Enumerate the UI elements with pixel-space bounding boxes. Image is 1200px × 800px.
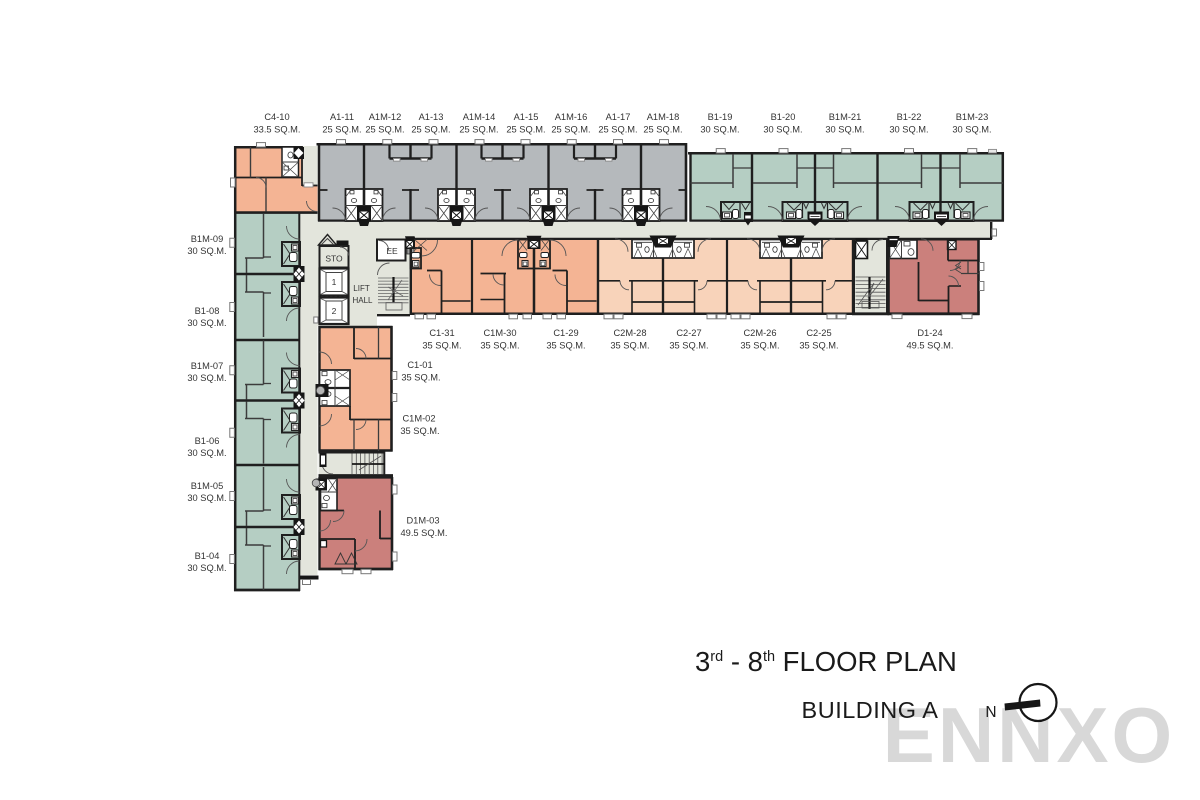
svg-text:C2M-28: C2M-28 (613, 328, 646, 338)
svg-text:D1-24: D1-24 (917, 328, 942, 338)
svg-text:25 SQ.M.: 25 SQ.M. (411, 125, 450, 135)
svg-text:49.5 SQ.M.: 49.5 SQ.M. (906, 341, 953, 351)
svg-text:35 SQ.M.: 35 SQ.M. (546, 341, 585, 351)
svg-text:30 SQ.M.: 30 SQ.M. (187, 493, 226, 503)
svg-text:C1-29: C1-29 (553, 328, 578, 338)
svg-text:B1-04: B1-04 (195, 551, 220, 561)
svg-text:B1-06: B1-06 (195, 436, 220, 446)
svg-text:30 SQ.M.: 30 SQ.M. (187, 373, 226, 383)
svg-text:33.5 SQ.M.: 33.5 SQ.M. (253, 125, 300, 135)
svg-text:25 SQ.M.: 25 SQ.M. (459, 125, 498, 135)
svg-text:35 SQ.M.: 35 SQ.M. (610, 341, 649, 351)
svg-text:C1-01: C1-01 (407, 360, 432, 370)
svg-text:35 SQ.M.: 35 SQ.M. (799, 341, 838, 351)
svg-text:B1-19: B1-19 (708, 112, 733, 122)
svg-text:25 SQ.M.: 25 SQ.M. (322, 125, 361, 135)
svg-text:30 SQ.M.: 30 SQ.M. (700, 125, 739, 135)
svg-text:B1M-07: B1M-07 (191, 361, 224, 371)
svg-text:25 SQ.M.: 25 SQ.M. (643, 125, 682, 135)
svg-text:A1M-18: A1M-18 (647, 112, 680, 122)
svg-text:C2-25: C2-25 (806, 328, 831, 338)
svg-text:B1M-21: B1M-21 (829, 112, 862, 122)
svg-text:35 SQ.M.: 35 SQ.M. (400, 426, 439, 436)
svg-text:A1M-14: A1M-14 (463, 112, 496, 122)
svg-text:HALL: HALL (352, 296, 373, 305)
svg-text:30 SQ.M.: 30 SQ.M. (187, 318, 226, 328)
svg-text:D1M-03: D1M-03 (406, 516, 439, 526)
svg-text:C1-31: C1-31 (429, 328, 454, 338)
svg-text:B1-08: B1-08 (195, 306, 220, 316)
svg-text:A1M-16: A1M-16 (555, 112, 588, 122)
svg-text:C1M-02: C1M-02 (402, 414, 435, 424)
svg-text:30 SQ.M.: 30 SQ.M. (187, 246, 226, 256)
svg-text:35 SQ.M.: 35 SQ.M. (422, 341, 461, 351)
svg-text:35 SQ.M.: 35 SQ.M. (669, 341, 708, 351)
svg-text:30 SQ.M.: 30 SQ.M. (889, 125, 928, 135)
svg-text:30 SQ.M.: 30 SQ.M. (187, 563, 226, 573)
svg-text:A1M-12: A1M-12 (369, 112, 402, 122)
svg-text:C4-10: C4-10 (264, 112, 289, 122)
svg-text:25 SQ.M.: 25 SQ.M. (506, 125, 545, 135)
svg-text:C2-27: C2-27 (676, 328, 701, 338)
svg-text:35 SQ.M.: 35 SQ.M. (740, 341, 779, 351)
svg-text:30 SQ.M.: 30 SQ.M. (952, 125, 991, 135)
svg-text:STO: STO (325, 254, 343, 264)
svg-text:30 SQ.M.: 30 SQ.M. (187, 448, 226, 458)
svg-text:N: N (985, 704, 996, 721)
svg-text:C1M-30: C1M-30 (483, 328, 516, 338)
svg-text:25 SQ.M.: 25 SQ.M. (598, 125, 637, 135)
svg-text:30 SQ.M.: 30 SQ.M. (825, 125, 864, 135)
svg-text:2: 2 (332, 306, 337, 316)
svg-text:25 SQ.M.: 25 SQ.M. (365, 125, 404, 135)
svg-text:49.5 SQ.M.: 49.5 SQ.M. (400, 528, 447, 538)
svg-text:B1-22: B1-22 (897, 112, 922, 122)
svg-text:25 SQ.M.: 25 SQ.M. (551, 125, 590, 135)
svg-text:BUILDING A: BUILDING A (802, 697, 939, 723)
svg-text:LIFT: LIFT (353, 284, 370, 293)
svg-text:A1-15: A1-15 (514, 112, 539, 122)
svg-text:35 SQ.M.: 35 SQ.M. (401, 373, 440, 383)
svg-text:30 SQ.M.: 30 SQ.M. (763, 125, 802, 135)
svg-text:35 SQ.M.: 35 SQ.M. (480, 341, 519, 351)
svg-text:B1M-09: B1M-09 (191, 234, 224, 244)
svg-text:A1-17: A1-17 (606, 112, 631, 122)
svg-text:A1-11: A1-11 (330, 112, 354, 122)
svg-text:B1M-05: B1M-05 (191, 481, 224, 491)
svg-text:3rd - 8th FLOOR PLAN: 3rd - 8th FLOOR PLAN (695, 646, 957, 677)
svg-text:B1M-23: B1M-23 (956, 112, 989, 122)
svg-text:B1-20: B1-20 (771, 112, 796, 122)
svg-text:A1-13: A1-13 (419, 112, 444, 122)
svg-text:C2M-26: C2M-26 (743, 328, 776, 338)
svg-text:1: 1 (332, 277, 337, 287)
